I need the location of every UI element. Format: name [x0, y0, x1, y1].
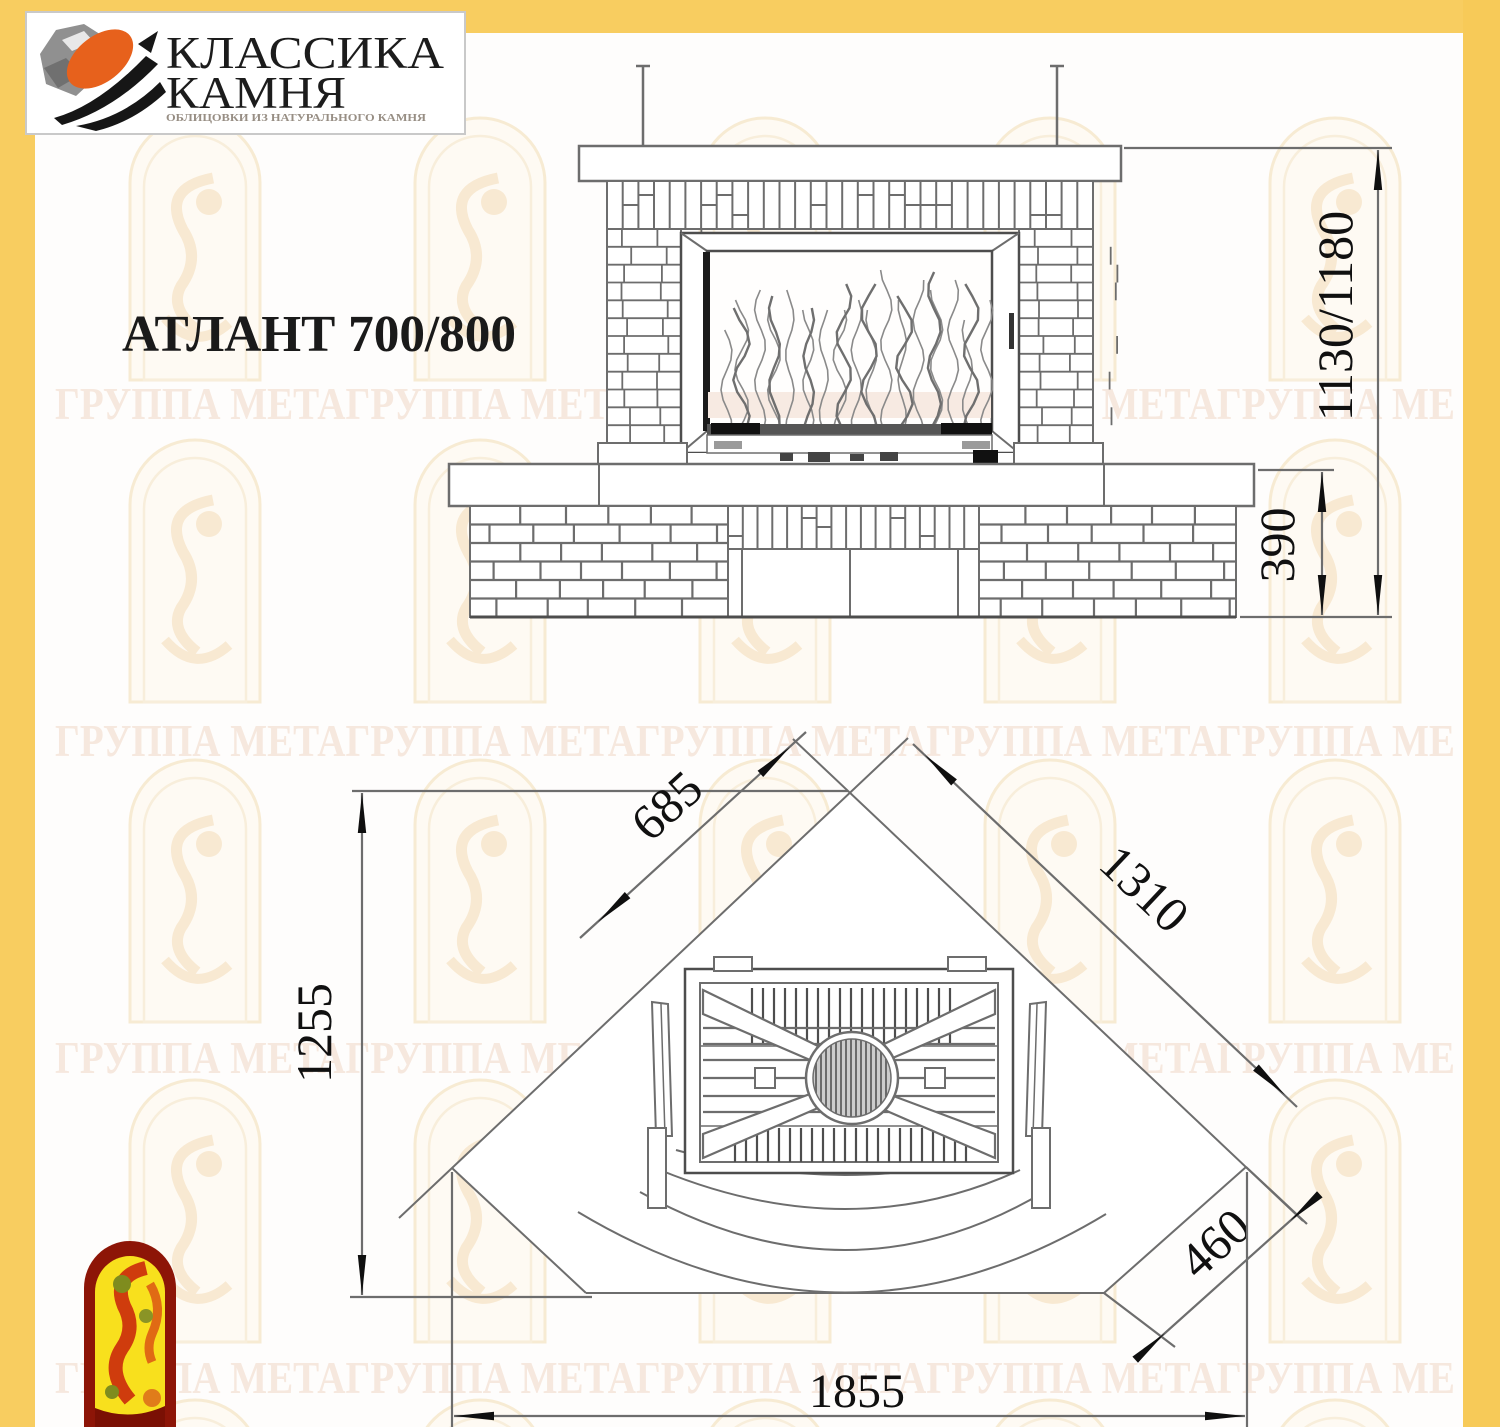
svg-text:АТЛАНТ 700/800: АТЛАНТ 700/800: [122, 306, 516, 363]
svg-text:ОБЛИЦОВКИ ИЗ НАТУРАЛЬНОГО КАМН: ОБЛИЦОВКИ ИЗ НАТУРАЛЬНОГО КАМНЯ: [166, 113, 427, 124]
svg-text:ГРУППА МЕТАГРУППА МЕТАГРУППА М: ГРУППА МЕТАГРУППА МЕТАГРУППА МЕТАГРУППА …: [55, 715, 1455, 766]
svg-text:1255: 1255: [286, 983, 342, 1083]
svg-text:390: 390: [1249, 508, 1305, 583]
svg-text:1855: 1855: [809, 1365, 905, 1418]
svg-text:1130/1180: 1130/1180: [1307, 211, 1363, 421]
svg-text:КАМНЯ: КАМНЯ: [166, 68, 346, 118]
svg-text:ГРУППА МЕТАГРУППА МЕТАГРУППА М: ГРУППА МЕТАГРУППА МЕТАГРУППА МЕТАГРУППА …: [55, 1352, 1455, 1403]
